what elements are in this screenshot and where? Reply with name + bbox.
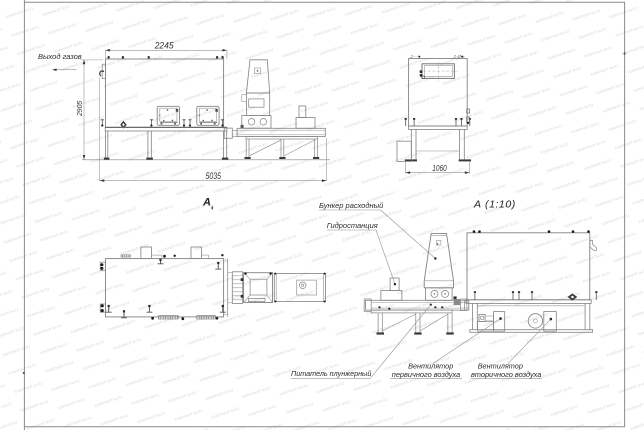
svg-text:2905: 2905 bbox=[75, 100, 84, 117]
svg-text:А: А bbox=[202, 197, 211, 209]
svg-text:А (1:10): А (1:10) bbox=[473, 198, 516, 210]
svg-text:Выход газов: Выход газов bbox=[38, 52, 82, 61]
svg-text:вторичного воздуха: вторичного воздуха bbox=[471, 370, 541, 379]
svg-text:Бункер расходный: Бункер расходный bbox=[319, 201, 384, 210]
svg-text:первичного воздуха: первичного воздуха bbox=[392, 370, 460, 379]
svg-text:2—: 2— bbox=[410, 54, 419, 59]
svg-text:2-Ø—: 2-Ø— bbox=[453, 54, 467, 59]
svg-text:2245: 2245 bbox=[154, 40, 175, 50]
svg-text:1060: 1060 bbox=[432, 164, 447, 173]
svg-text:Гидростанция: Гидростанция bbox=[327, 221, 378, 230]
svg-text:Питатель плунжерный: Питатель плунжерный bbox=[291, 369, 371, 378]
svg-text:5035: 5035 bbox=[206, 171, 222, 181]
